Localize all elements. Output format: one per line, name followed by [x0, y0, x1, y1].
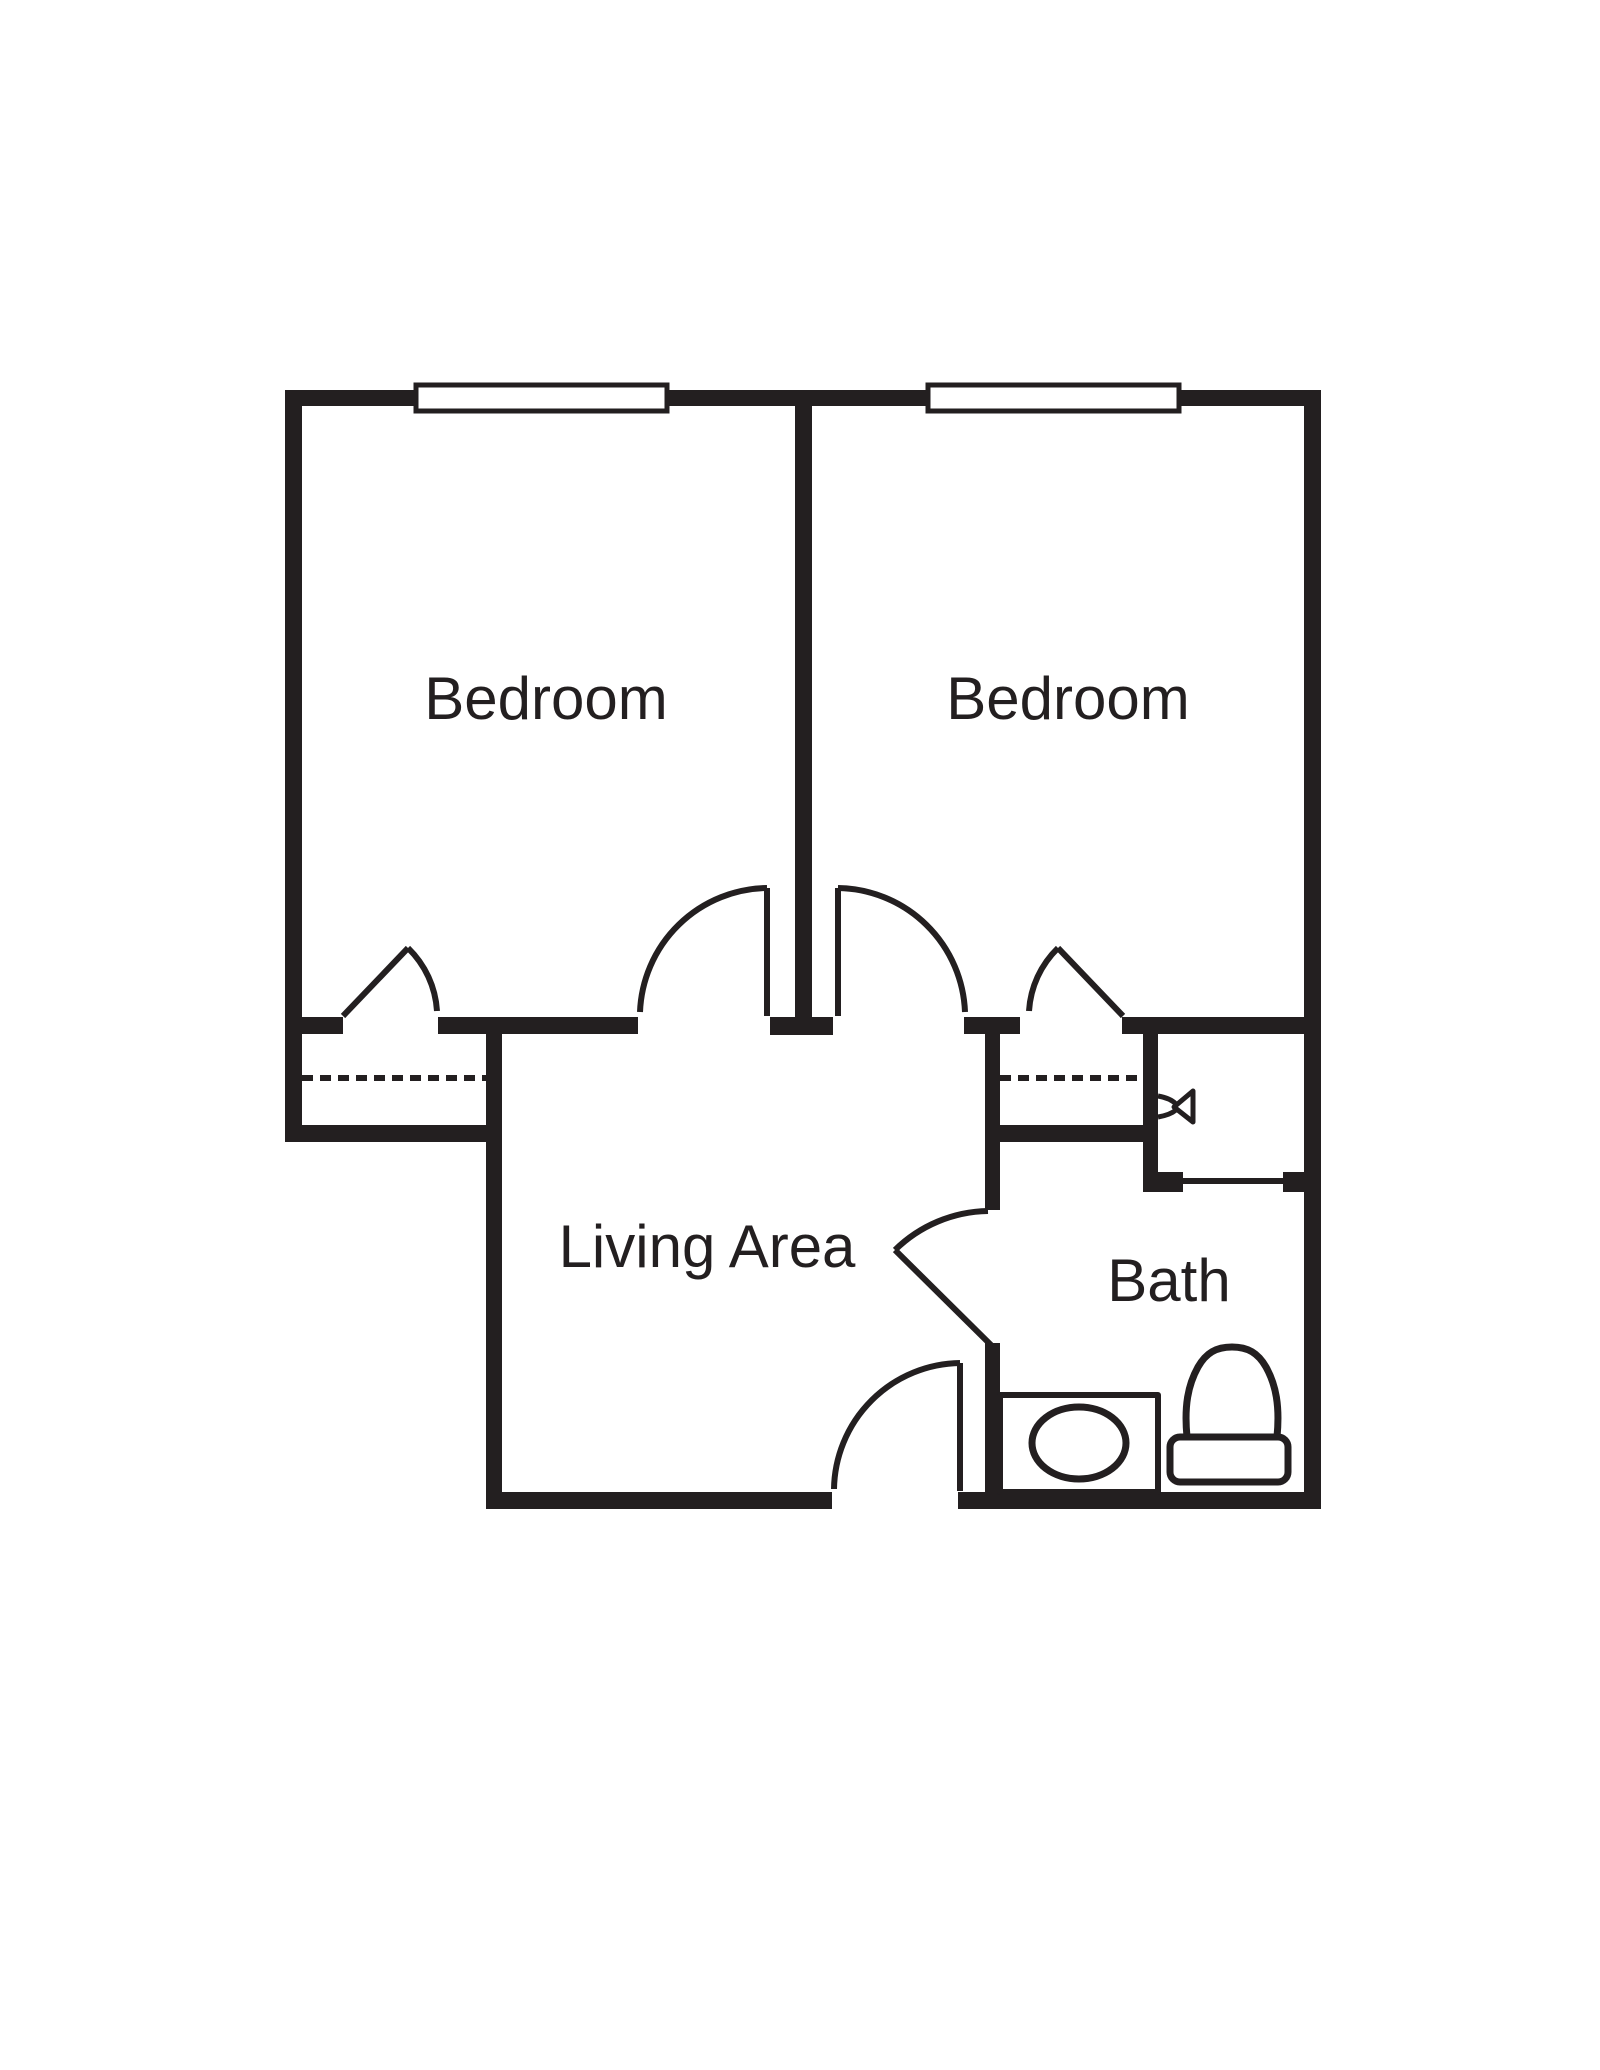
- door-swing-icon-bath-arc: [895, 1211, 988, 1250]
- door-swing-icon-closet1-leaf: [343, 948, 408, 1016]
- window-icon: [928, 385, 1179, 411]
- wall-closet2-right: [1143, 1017, 1158, 1192]
- toilet-base: [1170, 1437, 1288, 1482]
- door-swing-icon-entry-arc: [834, 1363, 960, 1489]
- door-swing-icon-closet2-arc: [1029, 948, 1058, 1011]
- door-swing-icon-bedroom1-arc: [640, 888, 767, 1012]
- shower-head-nub-bottom: [1158, 1110, 1176, 1117]
- wall-living-left: [486, 1017, 502, 1509]
- wall-closet1-bottom: [285, 1125, 502, 1142]
- wall-bedroom-divider: [795, 390, 812, 1018]
- sink-icon: [1032, 1407, 1126, 1479]
- shower-head-icon: [1158, 1091, 1193, 1122]
- shower-head-cone: [1174, 1091, 1193, 1122]
- wall-bedroom1-bottom-mid: [438, 1017, 638, 1034]
- floor-plan-page: Bedroom Bedroom Living Area Bath: [0, 0, 1600, 2070]
- bedroom2-label: Bedroom: [946, 665, 1189, 732]
- wall-bedroom1-bottom-left: [285, 1017, 343, 1034]
- door-swing-icon-bedroom2-arc: [838, 888, 965, 1012]
- door-swing-icon-closet1-arc: [408, 948, 437, 1011]
- door-swing-icon-closet2-leaf: [1058, 948, 1123, 1016]
- shower-entry-line: [1183, 1178, 1283, 1184]
- wall-bedroom-divider-foot: [770, 1017, 833, 1035]
- walls: [285, 390, 1321, 1509]
- wall-closet2-bottom: [1000, 1125, 1143, 1142]
- room-labels: Bedroom Bedroom Living Area Bath: [424, 665, 1230, 1314]
- door-swing-icon-bath-leaf: [895, 1250, 992, 1346]
- wall-living-bottom-left: [486, 1492, 832, 1509]
- wall-bath-divider-upper: [985, 1017, 1000, 1210]
- floor-plan-svg: Bedroom Bedroom Living Area Bath: [0, 0, 1600, 2070]
- wall-right: [1304, 390, 1321, 1509]
- shower-head-nub-top: [1158, 1096, 1176, 1104]
- bedroom1-label: Bedroom: [424, 665, 667, 732]
- toilet-icon: [1170, 1347, 1288, 1482]
- wall-shower-jamb-left: [1143, 1172, 1183, 1192]
- living-area-label: Living Area: [559, 1213, 856, 1280]
- wall-shower-jamb-right: [1283, 1172, 1304, 1192]
- window-icon: [416, 385, 667, 411]
- toilet-bowl: [1186, 1347, 1278, 1437]
- bath-label: Bath: [1107, 1247, 1230, 1314]
